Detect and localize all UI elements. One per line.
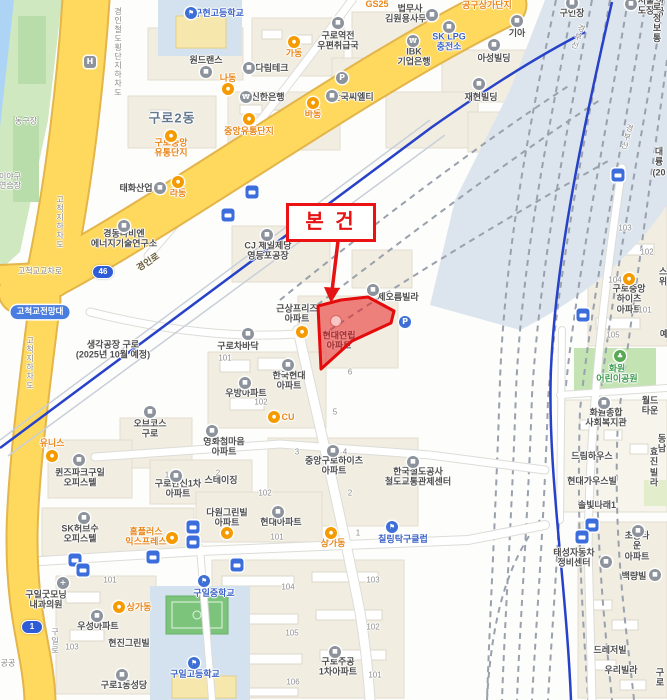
poi-icon: ■ xyxy=(329,646,341,658)
bus-stop-icon[interactable] xyxy=(77,564,90,577)
building-number: 3 xyxy=(295,447,299,456)
road-label: 경인로 xyxy=(135,251,161,273)
complex-icon: ● xyxy=(222,83,234,95)
poi-label[interactable]: 근상프리즈 아파트 xyxy=(276,304,317,325)
poi-label[interactable]: 구인장 xyxy=(560,8,585,18)
map-canvas[interactable]: 구현고등학교원드랜스다림테크신한은행구로역전 우편취급국법무사 김원용사무소기아… xyxy=(0,0,667,700)
bus-stop-icon[interactable] xyxy=(246,186,259,199)
poi-label[interactable]: 바동 xyxy=(305,109,322,119)
poi-school[interactable]: 구일고등학교 xyxy=(170,669,220,679)
building-number: 104 xyxy=(281,582,294,591)
poi-icon: ■ xyxy=(272,506,284,518)
parking-icon: P xyxy=(399,316,411,328)
rail-label: 경부선 xyxy=(569,23,587,52)
poi-icon: ■ xyxy=(78,512,90,524)
complex-icon: ● xyxy=(172,176,184,188)
complex-icon: ● xyxy=(325,527,337,539)
building-number: 105 xyxy=(285,628,298,637)
poi-label[interactable]: 재현빌딩 xyxy=(464,92,497,102)
poi-label[interactable]: 한국씨엘티 xyxy=(332,92,373,102)
poi-icon: ■ xyxy=(367,284,379,296)
subject-parcel-label[interactable]: 현대연립 아파트 xyxy=(322,331,355,352)
poi-icon: ■ xyxy=(242,328,254,340)
poi-label[interactable]: 중앙유통단지 xyxy=(224,126,274,136)
poi-label[interactable]: CJ 제일제당 영등포공장 xyxy=(244,241,291,262)
bus-stop-icon[interactable] xyxy=(576,531,589,544)
clipped-label[interactable]: 구로정보통 xyxy=(652,0,662,44)
poi-icon: ■ xyxy=(598,397,610,409)
bus-stop-icon[interactable] xyxy=(187,536,200,549)
poi-label[interactable]: 한국철도공사 철도교통관제센터 xyxy=(385,467,451,488)
building-number: 1 xyxy=(356,528,360,537)
poi-label[interactable]: 생각공장 구로 (2025년 10월 예정) xyxy=(76,340,150,361)
school-icon: ⚑ xyxy=(188,657,200,669)
poi-label[interactable]: 드레저빌 xyxy=(593,645,626,655)
school-icon: ⚑ xyxy=(198,575,210,587)
building-number: 105 xyxy=(606,330,619,339)
poi-icon: ■ xyxy=(473,78,485,90)
poi-icon: ■ xyxy=(488,39,500,51)
poi-label[interactable]: 상가동 xyxy=(127,602,152,612)
complex-icon: ● xyxy=(221,527,233,539)
building-number: 103 xyxy=(65,642,78,651)
poi-icon: ■ xyxy=(206,425,218,437)
building-number: 6 xyxy=(348,367,352,376)
clipped-label[interactable]: 스위 xyxy=(659,267,667,288)
bus-stop-icon[interactable] xyxy=(586,519,599,532)
route-shield: 46 xyxy=(92,265,114,279)
building-number: 5 xyxy=(333,407,337,416)
poi-label[interactable]: 우리빌라 xyxy=(604,665,637,675)
poi-icon: ■ xyxy=(116,669,128,681)
poi-icon: ■ xyxy=(443,21,455,33)
poi-icon: ■ xyxy=(243,62,255,74)
poi-label[interactable]: 오브코스 구로 xyxy=(133,419,166,440)
road-label: 경인철도횡단지하차도 xyxy=(113,7,122,97)
building-number: 101 xyxy=(218,353,231,362)
poi-school[interactable]: 구일중학교 xyxy=(193,588,234,598)
poi-label[interactable]: 우성아파트 xyxy=(77,621,118,631)
poi-label[interactable]: 화원종합 사회복지관 xyxy=(585,408,626,429)
poi-icon: ■ xyxy=(239,377,251,389)
complex-icon: ● xyxy=(307,97,319,109)
building-number: 104 xyxy=(608,275,621,284)
bus-stop-icon[interactable] xyxy=(577,309,590,322)
parking-icon: P xyxy=(336,72,348,84)
poi-label[interactable]: 공구상가단지 xyxy=(462,0,512,10)
poi-label[interactable]: 구로주공 1차아파트 xyxy=(319,657,357,678)
school-icon: ⚑ xyxy=(185,7,197,19)
poi-label[interactable]: GS25 xyxy=(365,0,388,9)
building-number: 101 xyxy=(103,575,116,584)
poi-icon: ■ xyxy=(154,182,166,194)
poi-icon: ■ xyxy=(327,445,339,457)
poi-label[interactable]: 구로1동성당 xyxy=(101,680,147,690)
poi-label[interactable]: 아성빌딩 xyxy=(477,53,510,63)
poi-label[interactable]: 유니스 xyxy=(40,438,65,448)
building-number: 4 xyxy=(343,447,347,456)
complex-icon: ● xyxy=(46,450,58,462)
building-number: 2 xyxy=(216,468,220,477)
building-number: 102 xyxy=(640,247,653,256)
poi-label[interactable]: 태성자동차 정비센터 xyxy=(553,548,594,569)
poi-label[interactable]: 나동 xyxy=(220,73,237,83)
poi-label[interactable]: 제오름빌라 xyxy=(377,292,418,302)
poi-label[interactable]: 다림테크 xyxy=(255,63,288,73)
complex-icon: ● xyxy=(113,601,125,613)
clipped-label[interactable]: 동남 xyxy=(658,434,666,455)
park-icon: ♣ xyxy=(614,350,626,362)
clipped-label: 공공 xyxy=(1,658,16,667)
poi-label[interactable]: 신한은행 xyxy=(251,92,284,102)
bus-stop-icon[interactable] xyxy=(612,169,625,182)
poi-label[interactable]: 퀸즈파크구일 오피스텔 xyxy=(55,468,105,489)
building-number: 101 xyxy=(368,670,381,679)
poi-label[interactable]: 원드랜스 xyxy=(189,55,222,65)
school-icon: ⚑ xyxy=(386,521,398,533)
poi-icon: ■ xyxy=(170,470,182,482)
poi-icon: ■ xyxy=(261,229,273,241)
building-number: 103 xyxy=(366,575,379,584)
poi-label[interactable]: 한국현대 아파트 xyxy=(272,371,305,392)
poi-label[interactable]: 구일굿모닝 내과의원 xyxy=(25,590,66,611)
poi-school[interactable]: 구현고등학교 xyxy=(194,8,244,18)
building-number: 101 xyxy=(638,305,651,314)
poi-icon: ■ xyxy=(91,610,103,622)
poi-icon: ■ xyxy=(600,556,612,568)
building-number: 106 xyxy=(286,677,299,686)
complex-icon: ● xyxy=(296,326,308,338)
complex-icon: ● xyxy=(268,411,280,423)
bus-stop-icon[interactable] xyxy=(147,551,160,564)
poi-label[interactable]: 솔빛나래1 xyxy=(578,500,616,510)
poi-label[interactable]: 구로역전 우편취급국 xyxy=(317,31,358,52)
poi-icon: ■ xyxy=(118,220,130,232)
poi-label[interactable]: 스테이징 xyxy=(204,475,237,485)
label-layer: 구현고등학교원드랜스다림테크신한은행구로역전 우편취급국법무사 김원용사무소기아… xyxy=(0,0,667,700)
rail-label: 경부선 xyxy=(619,123,635,151)
poi-label[interactable]: 태화산업 xyxy=(119,183,152,193)
bank-icon: ₩ xyxy=(240,91,252,103)
poi-icon: ■ xyxy=(649,569,661,581)
intersection-label: 고척교교차로 xyxy=(18,266,62,275)
road-label: 구일로 xyxy=(50,628,59,655)
complex-icon: ● xyxy=(288,36,300,48)
district-label: 구로2동 xyxy=(148,112,195,127)
building-number: 1 xyxy=(165,470,169,479)
poi-icon: ■ xyxy=(426,9,438,21)
poi-icon: ■ xyxy=(144,406,156,418)
poi-label[interactable]: 현대가우스빌 xyxy=(567,476,617,486)
building-number: 101 xyxy=(270,532,283,541)
clipped-label[interactable]: 대륭 (20 xyxy=(652,146,665,177)
complex-icon: ● xyxy=(623,273,635,285)
clipped-label[interactable]: 예 xyxy=(660,329,667,339)
poi-icon: ■ xyxy=(632,525,644,537)
poi-label[interactable]: CU xyxy=(282,412,295,422)
area-label: 농구장 xyxy=(15,116,37,125)
building-number: 103 xyxy=(618,223,631,232)
building-number: 2 xyxy=(348,488,352,497)
poi-label[interactable]: 홈플러스 익스프레스 xyxy=(125,527,166,548)
building-number: 102 xyxy=(258,488,271,497)
poi-icon: ■ xyxy=(511,15,523,27)
poi-label[interactable]: 가동 xyxy=(286,48,303,58)
poi-label[interactable]: 기아 xyxy=(509,28,526,38)
poi-label[interactable]: 월드타운 xyxy=(642,396,659,417)
building-number: 102 xyxy=(254,397,267,406)
road-label: 고척지하차도 xyxy=(55,195,64,249)
poi-label[interactable]: 상가동 xyxy=(321,538,346,548)
poi-label[interactable]: 칠링탁구클럽 xyxy=(378,534,428,544)
poi-icon: ■ xyxy=(407,456,419,468)
poi-icon: ■ xyxy=(326,90,338,102)
poi-label[interactable]: IBK 기업은행 xyxy=(397,47,430,68)
poi-icon: ■ xyxy=(73,454,85,466)
poi-icon: ■ xyxy=(282,359,294,371)
poi-label[interactable]: 구로한신1차 아파트 xyxy=(155,479,201,500)
clipped-label[interactable]: 구로 xyxy=(656,668,664,689)
complex-icon: ● xyxy=(165,130,177,142)
road-label: 고척지하차도 xyxy=(25,336,34,390)
poi-label[interactable]: 백량빌 xyxy=(622,571,647,581)
subject-callout: 본 건 xyxy=(286,203,376,242)
route-shield: 1 xyxy=(21,620,43,634)
bus-stop-icon[interactable] xyxy=(222,209,235,222)
poi-park[interactable]: 화원 어린이공원 xyxy=(596,364,637,385)
poi-label[interactable]: SK허브수 오피스텔 xyxy=(61,524,98,545)
complex-icon: ● xyxy=(243,113,255,125)
poi-label[interactable]: 다원그린빌 아파트 xyxy=(206,508,247,529)
poi-icon: ■ xyxy=(200,66,212,78)
complex-icon: ● xyxy=(166,532,178,544)
poi-label[interactable]: 중앙구로하이츠 아파트 xyxy=(305,456,363,477)
pill-label[interactable]: 고척교전망대 xyxy=(11,305,70,319)
poi-label[interactable]: SK LPG 충전소 xyxy=(432,32,466,53)
clipped-label: 이야구 연습장 xyxy=(0,172,21,190)
building-number: 102 xyxy=(366,622,379,631)
poi-label[interactable]: 현대아파트 xyxy=(260,517,301,527)
poi-label[interactable]: 구로차바닥 xyxy=(217,341,258,351)
poi-icon: ■ xyxy=(332,17,344,29)
bank-icon: ₩ xyxy=(407,35,419,47)
poi-label[interactable]: 라동 xyxy=(170,188,187,198)
clinic-icon: + xyxy=(57,577,69,589)
bus-stop-icon[interactable] xyxy=(231,559,244,572)
poi-label[interactable]: 현진그린빌 xyxy=(108,638,149,648)
poi-label[interactable]: 영화첨마음 아파트 xyxy=(203,437,244,458)
bus-stop-icon[interactable] xyxy=(187,521,200,534)
hospital-icon: H xyxy=(84,56,96,68)
poi-label[interactable]: 드림하우스 xyxy=(571,451,612,461)
